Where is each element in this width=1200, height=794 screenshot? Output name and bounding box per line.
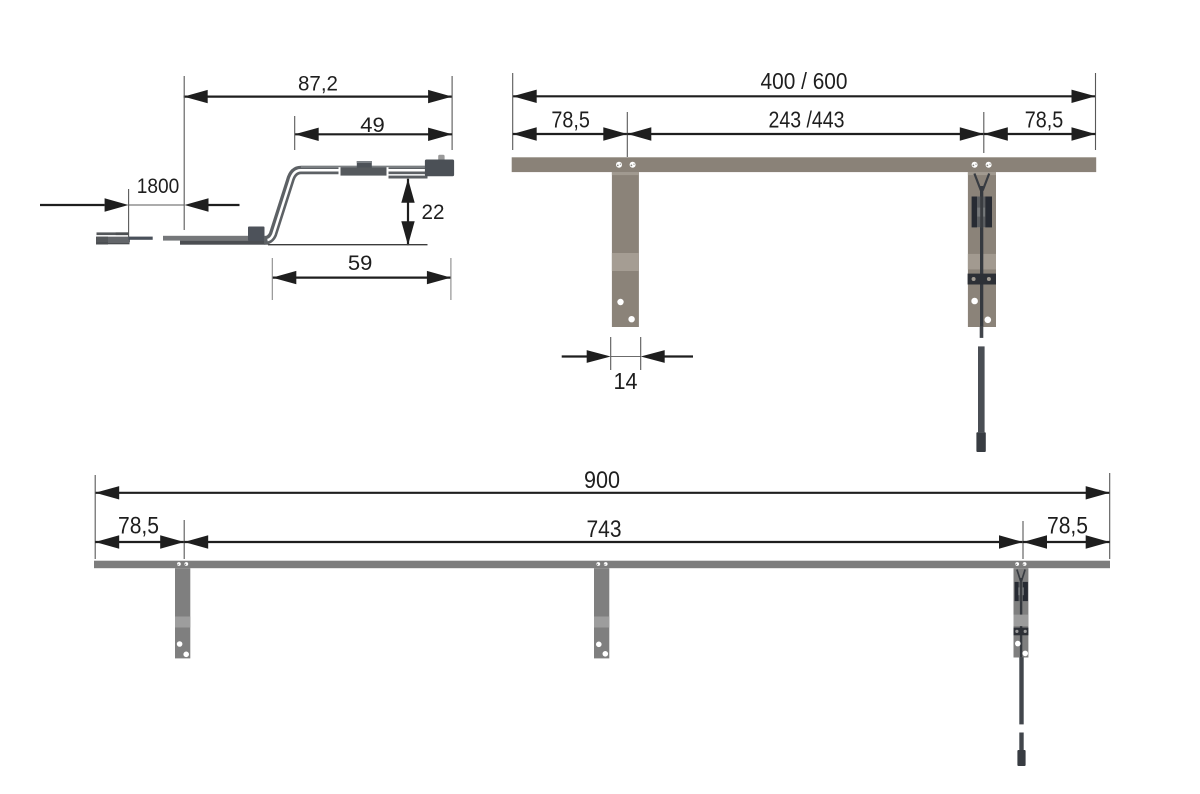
- svg-text:1800: 1800: [137, 174, 180, 198]
- svg-text:87,2: 87,2: [298, 72, 338, 96]
- svg-text:78,5: 78,5: [1047, 513, 1088, 540]
- svg-text:78,5: 78,5: [118, 513, 159, 540]
- svg-text:400 / 600: 400 / 600: [761, 68, 848, 94]
- svg-text:49: 49: [360, 113, 385, 137]
- svg-text:243 /443: 243 /443: [769, 107, 845, 133]
- svg-text:22: 22: [422, 200, 445, 224]
- svg-text:14: 14: [614, 368, 638, 394]
- svg-text:900: 900: [584, 467, 620, 494]
- svg-text:59: 59: [348, 251, 373, 275]
- svg-text:78,5: 78,5: [1025, 107, 1064, 133]
- svg-text:78,5: 78,5: [551, 107, 590, 133]
- svg-text:743: 743: [587, 516, 622, 543]
